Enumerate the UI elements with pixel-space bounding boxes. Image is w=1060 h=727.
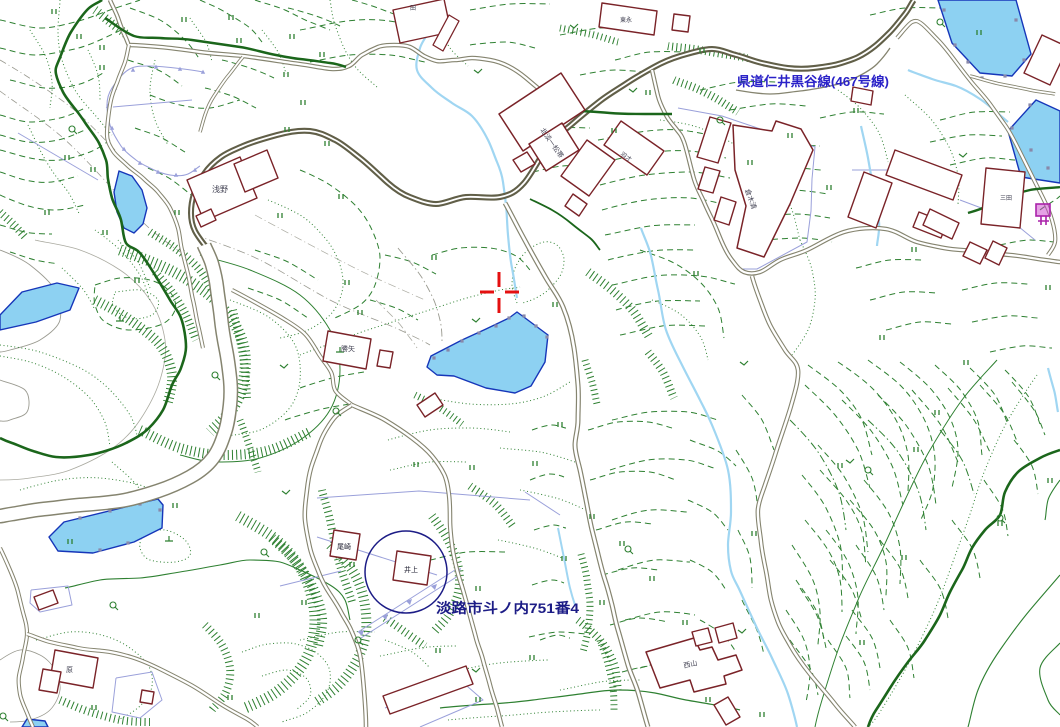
svg-text:浅野: 浅野 (212, 184, 228, 194)
svg-text:勝矢: 勝矢 (341, 344, 355, 353)
svg-text:三田: 三田 (1000, 195, 1012, 202)
svg-text:淡路市斗ノ内751番4: 淡路市斗ノ内751番4 (436, 600, 579, 616)
svg-text:県道仁井黒谷線(467号線): 県道仁井黒谷線(467号線) (737, 74, 889, 89)
svg-text:原: 原 (66, 666, 73, 674)
svg-text:尾崎: 尾崎 (337, 542, 351, 551)
svg-text:東永: 東永 (620, 16, 632, 24)
svg-text:井上: 井上 (404, 565, 418, 574)
svg-text:田: 田 (410, 5, 416, 12)
